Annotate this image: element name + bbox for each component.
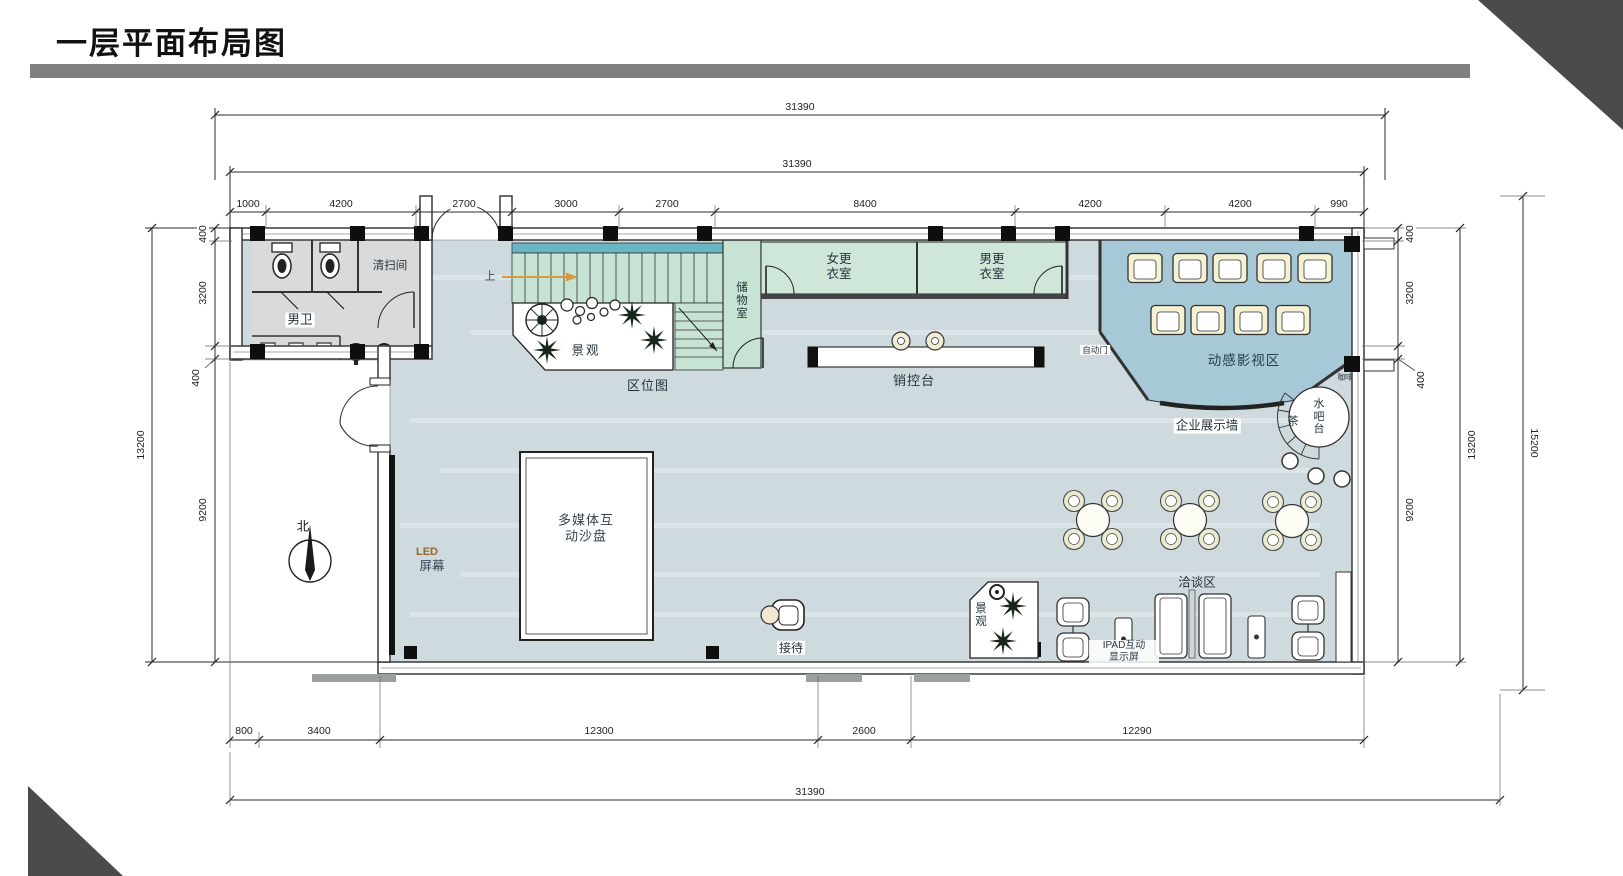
dim-top-seg: 4200 [1226, 198, 1253, 210]
label-location-map: 区位图 [627, 378, 669, 394]
dim-top-seg: 4200 [1076, 198, 1103, 210]
toilet-fixture-icon [272, 243, 292, 278]
table-dot [1254, 635, 1259, 640]
dim-top-seg: 8400 [851, 198, 878, 210]
sofa [1199, 594, 1231, 658]
desk-end [1034, 347, 1044, 367]
dim-right-seg: 400 [1404, 223, 1416, 245]
cinema-seat [1257, 254, 1291, 283]
label-mens-changing-room: 男更衣室 [976, 252, 1008, 282]
person-icon [761, 606, 779, 624]
landscape-top-planter [513, 298, 673, 371]
side-counter [1336, 572, 1351, 662]
exterior-step [312, 674, 970, 682]
dim-far-right-overall: 15200 [1528, 426, 1540, 459]
dim-right-seg: 400 [1415, 369, 1427, 391]
dim-bottom-seg: 2600 [850, 725, 877, 737]
west-door-panel [370, 378, 390, 385]
label-ipad-line2: 显示屏 [1109, 652, 1139, 663]
multimedia-sand-table [520, 452, 653, 640]
plant-icon [640, 326, 668, 354]
page: 一层平面布局图 [0, 0, 1623, 876]
dim-bottom-seg: 12290 [1120, 725, 1153, 737]
dim-top-seg: 1000 [234, 198, 261, 210]
sofa [1155, 594, 1187, 658]
armchair [1292, 632, 1324, 660]
label-cleaning-room: 清扫间 [373, 260, 408, 274]
armchair [1292, 596, 1324, 624]
dim-top-seg: 2700 [450, 198, 477, 210]
dim-left-overall: 13200 [135, 428, 147, 461]
desk-end [808, 347, 818, 367]
label-womens-changing-room: 女更衣室 [823, 252, 855, 282]
dim-top-overall-inner: 31390 [780, 158, 813, 170]
annex-right-wall [420, 240, 432, 346]
dim-left-seg: 3200 [197, 279, 209, 306]
dim-right-seg: 3200 [1404, 279, 1416, 306]
led-screen-wall [389, 455, 395, 655]
label-led-line1: LED [416, 546, 438, 559]
label-multimedia-sand-table: 多媒体互动沙盘 [555, 512, 617, 543]
label-storage-room: 储物室 [735, 282, 750, 322]
west-door-arc [340, 386, 378, 424]
window-sill [1364, 238, 1394, 249]
hall-left-wall-upper [378, 346, 390, 380]
label-ipad-display: IPAD互动 显示屏 [1089, 640, 1159, 664]
toilet-fixture-icon [320, 243, 340, 278]
plant-icon [995, 590, 999, 594]
dim-top-seg: 2700 [653, 198, 680, 210]
label-ipad-line1: IPAD互动 [1103, 640, 1146, 651]
entrance-door-arc [432, 205, 467, 240]
label-sales-control-desk: 销控台 [893, 373, 935, 389]
stair-lower-flight [675, 303, 723, 370]
dim-bottom-seg: 12300 [582, 725, 615, 737]
label-reception: 接待 [777, 641, 805, 655]
window-sill [1364, 360, 1394, 371]
armchair [1057, 633, 1089, 661]
dim-bottom-overall: 31390 [793, 786, 826, 798]
label-north: 北 [297, 520, 310, 535]
plant-icon [989, 627, 1017, 655]
label-coffee: 咖啡 [1338, 373, 1353, 382]
entrance-door-arc [465, 205, 500, 240]
hall-left-wall-lower [378, 450, 390, 662]
dim-left-seg: 400 [190, 367, 202, 389]
sofa-divider [1189, 590, 1195, 658]
label-negotiation-zone: 洽谈区 [1178, 576, 1216, 591]
changing-room-front-wall [761, 294, 1067, 299]
plant-icon [526, 304, 558, 336]
cinema-seat [1191, 306, 1225, 335]
label-led-screen: LED 屏幕 [416, 546, 438, 574]
dim-top-seg: 990 [1328, 198, 1350, 210]
label-landscape-top: 景观 [571, 344, 600, 359]
label-enterprise-display-wall: 企业展示墙 [1174, 419, 1241, 434]
cinema-seat [1276, 306, 1310, 335]
plant-icon [618, 301, 646, 329]
label-stair-up: 上 [485, 270, 496, 283]
dim-left-seg: 400 [197, 223, 209, 245]
north-compass-icon [289, 524, 331, 582]
desk-counter [808, 347, 1044, 367]
dim-bottom-seg: 3400 [305, 725, 332, 737]
plant-icon [999, 592, 1027, 620]
cinema-seat [1298, 254, 1332, 283]
stair-landing-strip [512, 243, 723, 253]
dim-top-overall-outer: 31390 [783, 101, 816, 113]
dim-right-overall: 13200 [1466, 428, 1478, 461]
floor-plan-drawing [0, 0, 1623, 876]
cinema-seat [1173, 254, 1207, 283]
dim-top-seg: 3000 [552, 198, 579, 210]
dim-left-seg: 9200 [197, 496, 209, 523]
cinema-seat [1128, 254, 1162, 283]
dim-bottom-seg: 800 [233, 725, 255, 737]
dim-top-seg: 4200 [327, 198, 354, 210]
dim-right-seg: 9200 [1404, 496, 1416, 523]
cinema-seat [1151, 306, 1185, 335]
cinema-seat [1234, 306, 1268, 335]
label-motion-cinema-zone: 动感影视区 [1208, 353, 1281, 369]
cinema-seat [1213, 254, 1247, 283]
label-led-line2: 屏幕 [420, 559, 435, 573]
label-tea: 茶 [1288, 415, 1299, 428]
label-landscape-bottom: 景观 [974, 603, 989, 629]
armchair [1057, 598, 1089, 626]
annex-left-wall [230, 228, 242, 360]
label-auto-door: 自动门 [1080, 345, 1110, 355]
west-door-arc [340, 424, 378, 446]
plant-icon [533, 336, 561, 364]
label-water-bar: 水吧台 [1312, 398, 1327, 436]
label-mens-toilet: 男卫 [285, 313, 314, 328]
